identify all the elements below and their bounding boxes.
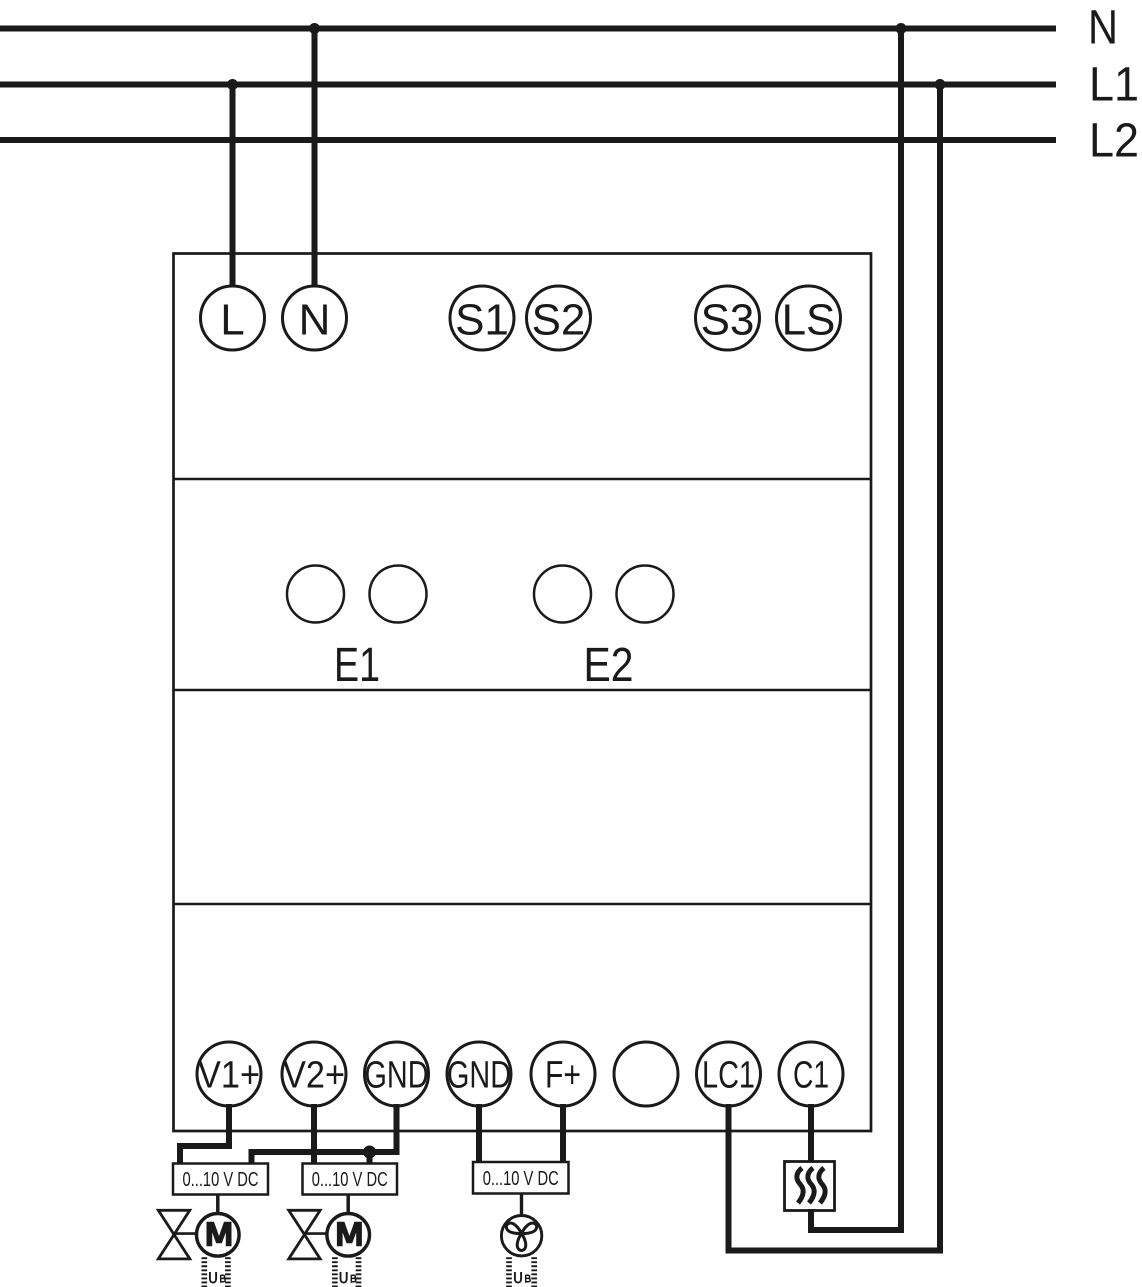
svg-text:V1+: V1+	[198, 1055, 260, 1097]
svg-text:S3: S3	[701, 296, 755, 345]
svg-text:LC1: LC1	[702, 1055, 755, 1097]
svg-text:V2+: V2+	[283, 1055, 345, 1097]
svg-text:N: N	[299, 296, 331, 345]
svg-text:0...10 V DC: 0...10 V DC	[183, 1169, 259, 1191]
svg-text:L1: L1	[1089, 59, 1139, 112]
svg-text:LS: LS	[782, 296, 836, 345]
svg-text:E2: E2	[584, 639, 634, 692]
svg-text:0...10 V DC: 0...10 V DC	[312, 1169, 388, 1191]
svg-text:F+: F+	[545, 1055, 581, 1097]
svg-text:C1: C1	[793, 1055, 829, 1097]
svg-text:S2: S2	[532, 296, 586, 345]
svg-text:GND: GND	[447, 1055, 511, 1097]
svg-text:N: N	[1088, 2, 1118, 55]
svg-text:E1: E1	[334, 639, 380, 692]
svg-text:L: L	[220, 296, 244, 345]
svg-text:L2: L2	[1089, 115, 1139, 168]
svg-text:S1: S1	[455, 296, 509, 345]
svg-text:GND: GND	[365, 1055, 429, 1097]
svg-text:0...10 V DC: 0...10 V DC	[483, 1168, 559, 1190]
